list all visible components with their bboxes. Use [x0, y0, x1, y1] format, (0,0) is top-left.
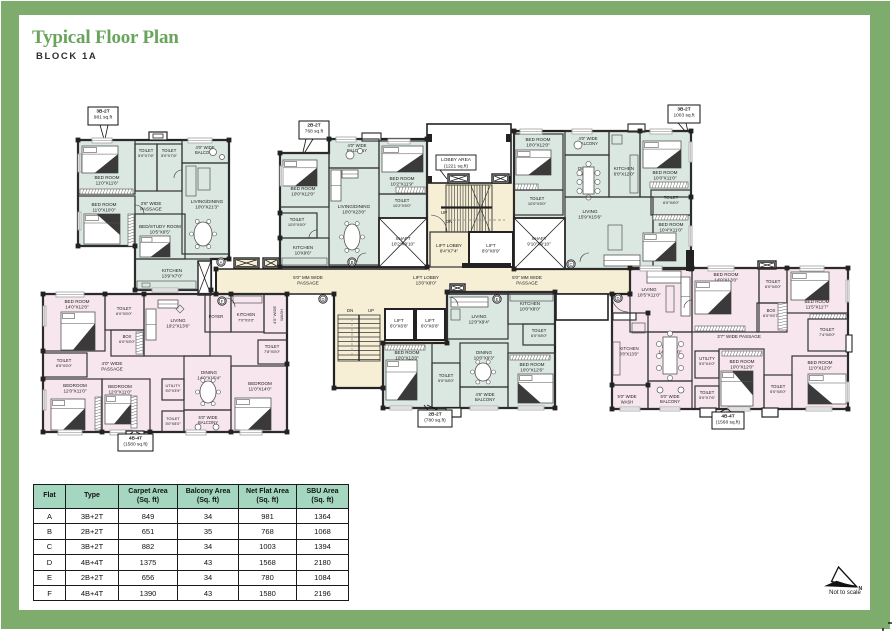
svg-text:11'5″X11'7″: 11'5″X11'7″: [806, 305, 829, 310]
svg-text:UP: UP: [441, 210, 447, 215]
svg-text:5'0″ MM WIDE: 5'0″ MM WIDE: [512, 275, 542, 280]
svg-text:13'0″X8'0″: 13'0″X8'0″: [416, 281, 437, 286]
svg-text:LIFT: LIFT: [486, 243, 496, 248]
svg-text:6'0″X8'0″: 6'0″X8'0″: [531, 333, 548, 338]
svg-text:8'5″X5'0″: 8'5″X5'0″: [56, 363, 73, 368]
svg-text:LIVING/DINING: LIVING/DINING: [191, 199, 224, 204]
svg-text:A: A: [220, 260, 223, 265]
svg-text:6'0″X6'8″: 6'0″X6'8″: [390, 324, 409, 329]
svg-text:D: D: [321, 297, 324, 302]
svg-text:10'0″X5'0″: 10'0″X5'0″: [288, 222, 307, 227]
svg-text:10'2″X9'10″: 10'2″X9'10″: [391, 242, 415, 247]
svg-text:2B-2T: 2B-2T: [428, 412, 441, 418]
svg-text:FOYER: FOYER: [209, 314, 223, 319]
svg-text:4B-4T: 4B-4T: [721, 414, 734, 420]
svg-text:10'0″X9'3″: 10'0″X9'3″: [474, 356, 495, 361]
svg-text:5'0″X7'6″: 5'0″X7'6″: [161, 153, 178, 158]
svg-text:BED ROOM: BED ROOM: [64, 299, 89, 304]
svg-text:LIVING: LIVING: [170, 318, 185, 323]
svg-text:5'0″X4'0″: 5'0″X4'0″: [699, 361, 716, 366]
svg-text:768 sq.ft: 768 sq.ft: [305, 128, 324, 134]
svg-text:KITCHEN: KITCHEN: [237, 312, 255, 317]
svg-text:BED ROOM: BED ROOM: [658, 222, 683, 227]
svg-text:F: F: [221, 299, 224, 304]
svg-text:11'0″X10'0″: 11'0″X10'0″: [92, 208, 115, 213]
svg-text:DN: DN: [347, 308, 353, 313]
svg-text:BED ROOM: BED ROOM: [394, 350, 419, 355]
svg-text:LIVING: LIVING: [582, 209, 597, 214]
svg-text:BED ROOM: BED ROOM: [290, 186, 315, 191]
svg-text:6'0″X12'0″: 6'0″X12'0″: [614, 172, 635, 177]
svg-text:6'0″X6'8″: 6'0″X6'8″: [421, 324, 440, 329]
svg-text:SHAFT: SHAFT: [395, 236, 410, 241]
svg-text:11'0″X14'0″: 11'0″X14'0″: [248, 387, 271, 392]
svg-text:C: C: [569, 262, 572, 267]
svg-text:5'0″ WIDE: 5'0″ WIDE: [617, 394, 636, 399]
svg-text:E: E: [496, 297, 499, 302]
svg-text:12'0″X9'4″: 12'0″X9'4″: [469, 320, 490, 325]
svg-text:B: B: [351, 260, 354, 265]
svg-text:6'0″X5'0″: 6'0″X5'0″: [116, 311, 133, 316]
svg-text:7'8″X5'0″: 7'8″X5'0″: [264, 349, 281, 354]
svg-text:4B-4T: 4B-4T: [129, 436, 142, 442]
svg-text:DINING: DINING: [201, 370, 218, 375]
svg-text:12'0″X11'0″: 12'0″X11'0″: [63, 389, 86, 394]
svg-text:15'9″X15'6″: 15'9″X15'6″: [578, 215, 602, 220]
svg-text:WASH: WASH: [621, 400, 633, 405]
svg-text:6'0″X8'0″: 6'0″X8'0″: [765, 284, 782, 289]
svg-text:10'0″X5'0″: 10'0″X5'0″: [528, 201, 547, 206]
svg-text:8'4″X7'4″: 8'4″X7'4″: [440, 249, 459, 254]
svg-text:PASSAGE: PASSAGE: [101, 367, 123, 372]
svg-text:3B-2T: 3B-2T: [96, 109, 109, 115]
svg-text:8'0″X13'0″: 8'0″X13'0″: [619, 352, 639, 357]
svg-text:5'0″X7'6″: 5'0″X7'6″: [699, 395, 716, 400]
svg-text:LIVING: LIVING: [471, 314, 486, 319]
svg-text:WASH: WASH: [279, 309, 284, 321]
svg-text:BED ROOM: BED ROOM: [525, 137, 550, 142]
svg-text:(1221 sq.ft): (1221 sq.ft): [444, 164, 469, 170]
svg-text:LIVING/DINING: LIVING/DINING: [338, 204, 371, 209]
svg-text:PASSAGE: PASSAGE: [516, 281, 538, 286]
svg-text:BALCONY: BALCONY: [475, 397, 495, 402]
svg-text:5'0″X8'0″: 5'0″X8'0″: [438, 378, 455, 383]
svg-text:KITCHEN: KITCHEN: [520, 301, 540, 306]
svg-text:(1580 sq.ft): (1580 sq.ft): [123, 441, 148, 447]
svg-text:18'5″X11'0″: 18'5″X11'0″: [637, 293, 660, 298]
svg-text:BED ROOM: BED ROOM: [519, 362, 544, 367]
svg-text:10'X9'6″: 10'X9'6″: [295, 251, 312, 256]
svg-text:BALCONY: BALCONY: [660, 399, 680, 404]
svg-text:12'0″X11'0″: 12'0″X11'0″: [108, 390, 131, 395]
svg-text:3'7″ WIDE PASSAGE: 3'7″ WIDE PASSAGE: [717, 334, 761, 339]
svg-text:PASSAGE: PASSAGE: [297, 281, 319, 286]
svg-text:5'0″X8'0″: 5'0″X8'0″: [770, 389, 787, 394]
svg-text:BEDROOM: BEDROOM: [248, 381, 272, 386]
svg-text:BED/STUDY ROOM: BED/STUDY ROOM: [139, 224, 181, 229]
svg-text:13'9″X7'0″: 13'9″X7'0″: [162, 274, 183, 279]
svg-text:BED ROOM: BED ROOM: [91, 202, 116, 207]
svg-text:LOBBY AREA: LOBBY AREA: [441, 157, 472, 163]
svg-text:3'6″ WIDE: 3'6″ WIDE: [141, 201, 162, 206]
svg-text:LIFT LOBBY: LIFT LOBBY: [413, 275, 439, 280]
svg-text:9'10″X9'10″: 9'10″X9'10″: [527, 242, 551, 247]
svg-text:5'0″X7'6″: 5'0″X7'6″: [138, 153, 155, 158]
svg-text:4'0″ WIDE: 4'0″ WIDE: [272, 306, 277, 325]
svg-text:DINING: DINING: [476, 350, 493, 355]
svg-text:11'0″X12'0″: 11'0″X12'0″: [808, 366, 831, 371]
svg-text:10'2″X11'9″: 10'2″X11'9″: [390, 182, 413, 187]
svg-text:10'4″X11'0″: 10'4″X11'0″: [659, 228, 682, 233]
svg-text:UTILITY: UTILITY: [166, 383, 181, 388]
svg-text:BED ROOM: BED ROOM: [389, 176, 414, 181]
svg-text:BED ROOM: BED ROOM: [807, 360, 832, 365]
svg-text:KITCHEN: KITCHEN: [162, 268, 182, 273]
svg-text:TOILET: TOILET: [166, 416, 180, 421]
svg-text:KITCHEN: KITCHEN: [619, 346, 638, 351]
svg-text:7'0″X9'3″: 7'0″X9'3″: [238, 318, 255, 323]
svg-text:19'2″X13'6″: 19'2″X13'6″: [166, 324, 190, 329]
svg-text:10'0″X12'6″: 10'0″X12'6″: [520, 368, 544, 373]
svg-text:BED ROOM: BED ROOM: [729, 359, 754, 364]
svg-text:10'0″X11'0″: 10'0″X11'0″: [653, 176, 676, 181]
svg-text:981 sq.ft: 981 sq.ft: [94, 114, 113, 120]
svg-text:KITCHEN: KITCHEN: [614, 166, 634, 171]
svg-text:LIFT: LIFT: [425, 318, 435, 323]
svg-text:1003 sq.ft: 1003 sq.ft: [673, 112, 695, 118]
svg-text:SHAFT: SHAFT: [531, 236, 546, 241]
svg-text:11'0″X11'6″: 11'0″X11'6″: [96, 181, 119, 186]
svg-text:10'0″X12'0″: 10'0″X12'0″: [291, 192, 315, 197]
svg-text:10'0″X23'0″: 10'0″X23'0″: [342, 210, 366, 215]
svg-text:14'0″X12'0″: 14'0″X12'0″: [65, 305, 89, 310]
svg-text:10'0″X12'0″: 10'0″X12'0″: [526, 143, 550, 148]
svg-text:BED ROOM: BED ROOM: [713, 272, 738, 277]
svg-text:6'0″X5'7″: 6'0″X5'7″: [763, 313, 780, 318]
svg-text:5'0″X8'0″: 5'0″X8'0″: [165, 422, 181, 426]
svg-text:(1568 sq.ft): (1568 sq.ft): [716, 419, 741, 425]
svg-text:KITCHEN: KITCHEN: [293, 245, 313, 250]
svg-text:5'0″X3'9″: 5'0″X3'9″: [165, 389, 181, 393]
svg-text:10'5″X9'5″: 10'5″X9'5″: [150, 230, 171, 235]
svg-text:LIFT LOBBY: LIFT LOBBY: [436, 243, 462, 248]
svg-text:4'0″ WIDE: 4'0″ WIDE: [102, 361, 123, 366]
svg-text:BEDROOM: BEDROOM: [108, 384, 132, 389]
svg-text:DN: DN: [446, 219, 453, 224]
svg-text:(780 sq.ft): (780 sq.ft): [424, 417, 446, 423]
svg-text:5'0″ MM WIDE: 5'0″ MM WIDE: [293, 275, 323, 280]
svg-text:3B-2T: 3B-2T: [677, 107, 690, 113]
svg-text:LIFT: LIFT: [394, 318, 404, 323]
svg-text:10'0″X8'0″: 10'0″X8'0″: [520, 307, 541, 312]
svg-text:D: D: [616, 296, 619, 301]
svg-text:10'0″X12'0″: 10'0″X12'0″: [730, 365, 754, 370]
svg-text:BED ROOM: BED ROOM: [94, 175, 119, 180]
svg-text:2B-2T: 2B-2T: [307, 123, 320, 129]
svg-text:10'0″X21'3″: 10'0″X21'3″: [195, 205, 219, 210]
svg-text:6'0″X5'0″: 6'0″X5'0″: [119, 339, 136, 344]
svg-text:LIVING: LIVING: [641, 287, 656, 292]
svg-text:7'4″X8'0″: 7'4″X8'0″: [819, 332, 836, 337]
svg-text:8'9″X8'9″: 8'9″X8'9″: [482, 249, 501, 254]
svg-text:BED ROOM: BED ROOM: [652, 170, 677, 175]
svg-text:BEDROOM: BEDROOM: [63, 383, 87, 388]
svg-text:6'0″X8'0″: 6'0″X8'0″: [663, 200, 680, 205]
svg-text:UP: UP: [368, 308, 374, 313]
svg-text:10'2″X5'0″: 10'2″X5'0″: [393, 203, 412, 208]
